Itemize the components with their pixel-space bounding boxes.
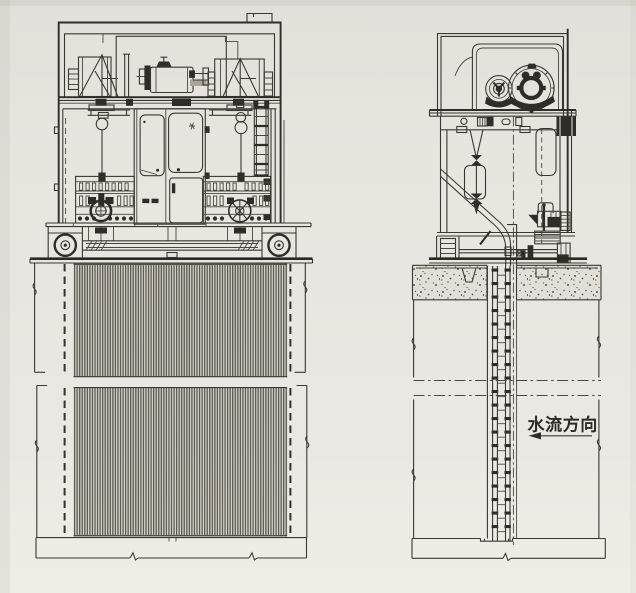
svg-text:水流方向: 水流方向: [528, 415, 598, 435]
